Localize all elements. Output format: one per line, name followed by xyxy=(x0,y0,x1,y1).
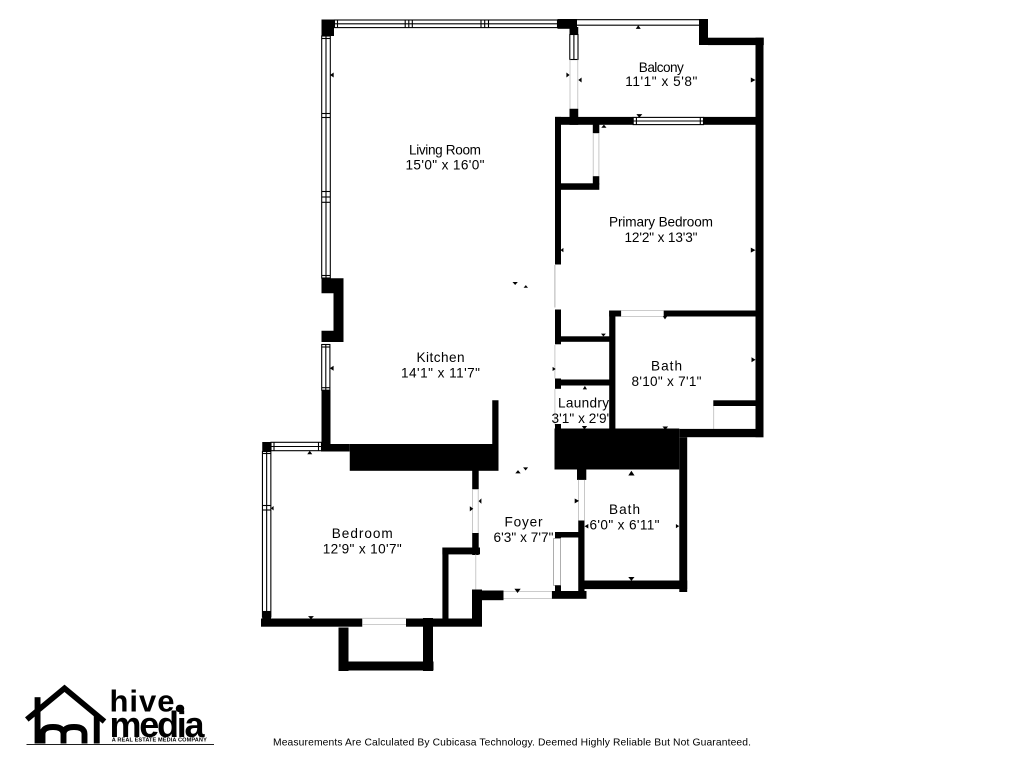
svg-text:6'3" x 7'7": 6'3" x 7'7" xyxy=(494,530,554,545)
svg-text:A REAL ESTATE MEDIA COMPANY: A REAL ESTATE MEDIA COMPANY xyxy=(112,738,208,744)
svg-text:Kitchen: Kitchen xyxy=(417,350,465,365)
svg-text:15'0" x 16'0": 15'0" x 16'0" xyxy=(406,158,485,173)
svg-text:3'1" x 2'9": 3'1" x 2'9" xyxy=(552,411,612,426)
svg-text:Bath: Bath xyxy=(651,359,682,374)
svg-text:Foyer: Foyer xyxy=(505,515,543,530)
svg-text:Balcony: Balcony xyxy=(639,60,684,75)
svg-text:Bedroom: Bedroom xyxy=(332,526,393,541)
svg-text:6'0" x 6'11": 6'0" x 6'11" xyxy=(590,518,660,533)
svg-text:Primary Bedroom: Primary Bedroom xyxy=(609,214,713,229)
svg-text:Bath: Bath xyxy=(609,502,640,517)
svg-text:11'1" x 5'8": 11'1" x 5'8" xyxy=(625,74,697,89)
svg-text:8'10" x 7'1": 8'10" x 7'1" xyxy=(632,374,702,389)
svg-text:Living Room: Living Room xyxy=(409,143,481,158)
svg-text:12'2" x 13'3": 12'2" x 13'3" xyxy=(625,230,698,245)
svg-text:14'1" x 11'7": 14'1" x 11'7" xyxy=(401,366,480,381)
svg-text:Measurements Are Calculated By: Measurements Are Calculated By Cubicasa … xyxy=(273,738,751,749)
svg-text:Laundry: Laundry xyxy=(558,396,609,411)
svg-text:12'9" x 10'7": 12'9" x 10'7" xyxy=(323,542,402,557)
